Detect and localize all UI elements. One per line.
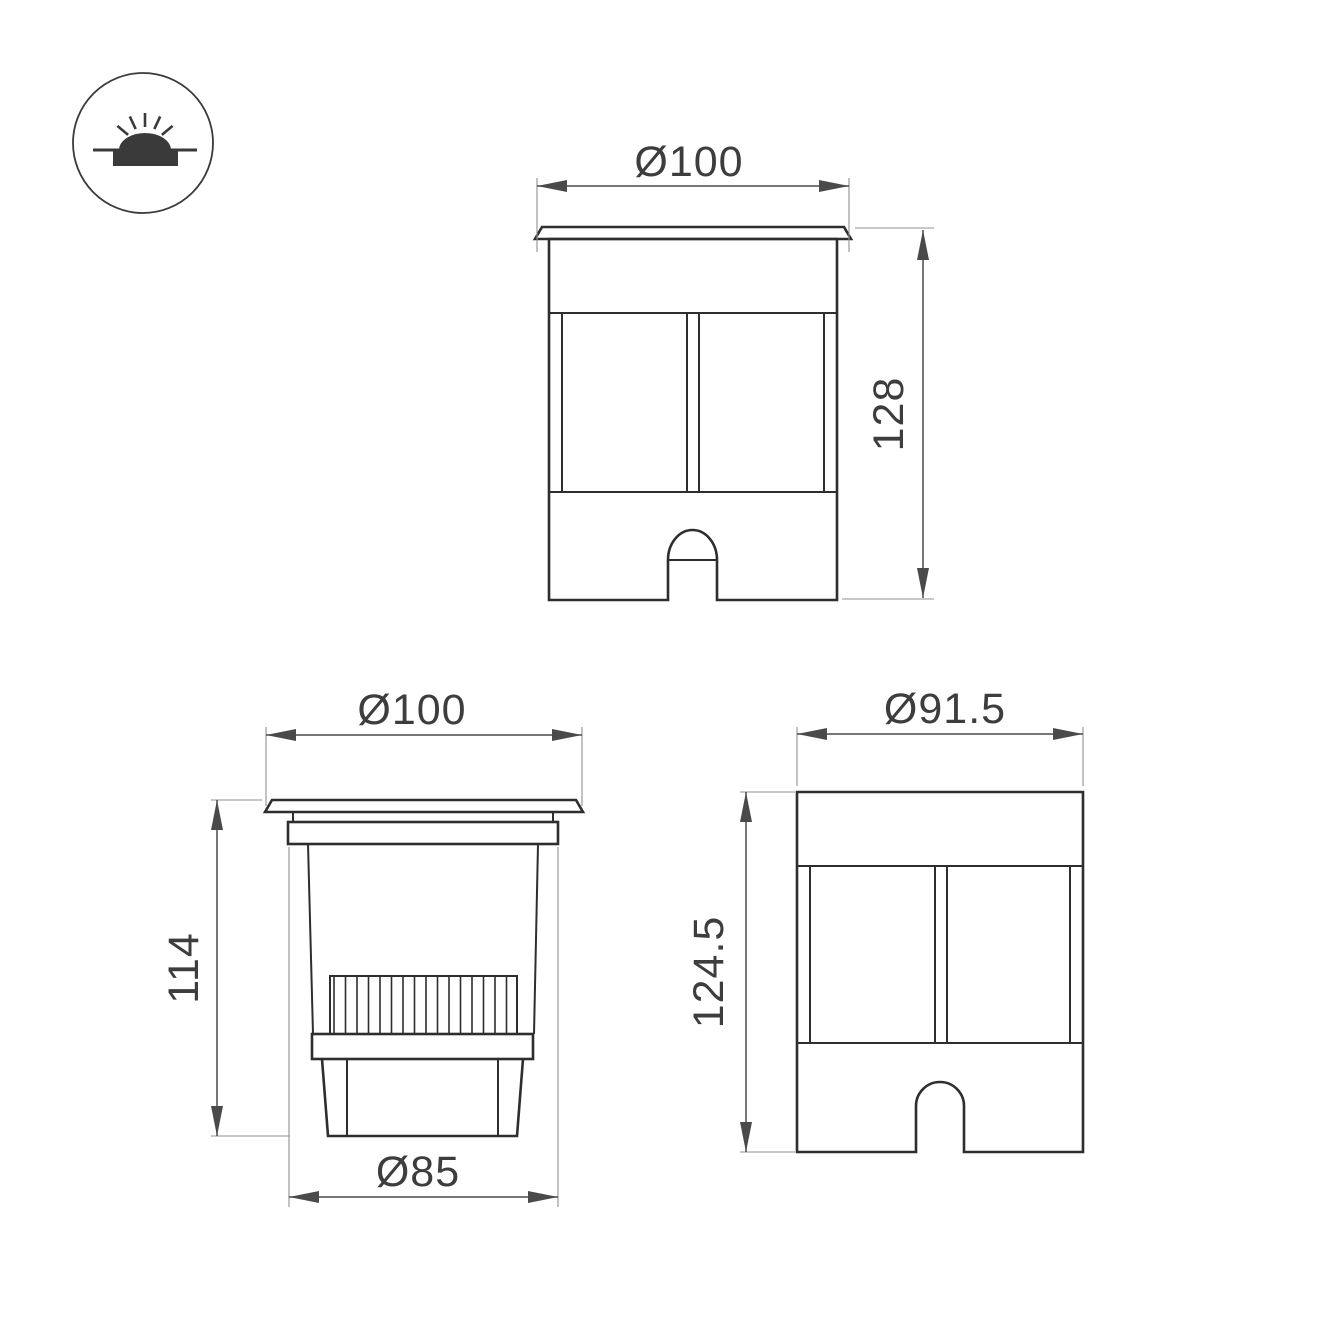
section-view-height-dimension: 114 bbox=[160, 800, 290, 1136]
front-view-width-dimension: Ø100 bbox=[537, 138, 849, 252]
section-heatsink-fins bbox=[334, 976, 507, 1034]
section-flange bbox=[265, 800, 583, 812]
recessed-ground-light-icon bbox=[73, 73, 213, 213]
front-view-body bbox=[549, 239, 837, 600]
side-view-height-dimension: 124.5 bbox=[685, 792, 795, 1152]
icon-lamp-dome bbox=[119, 133, 171, 150]
arrowhead-bottom bbox=[740, 1122, 752, 1152]
front-view-height-label: 128 bbox=[865, 377, 913, 452]
arrowhead-right bbox=[528, 1191, 558, 1203]
side-view-height-label: 124.5 bbox=[685, 916, 733, 1029]
arrowhead-top bbox=[917, 230, 929, 260]
section-view-height-label: 114 bbox=[160, 932, 208, 1004]
arrowhead-right bbox=[1053, 728, 1083, 740]
arrowhead-top bbox=[211, 800, 223, 830]
side-view-glass-divider bbox=[935, 866, 947, 1043]
arrowhead-top bbox=[740, 792, 752, 822]
side-view bbox=[797, 792, 1083, 1152]
icon-recessed-body bbox=[113, 151, 178, 166]
side-view-width-dimension: Ø91.5 bbox=[797, 685, 1083, 786]
extension-lines bbox=[537, 178, 849, 252]
section-collar bbox=[288, 822, 558, 844]
side-view-glass-frame bbox=[810, 866, 1070, 1043]
section-lower-housing-walls bbox=[347, 1059, 498, 1136]
arrowhead-left bbox=[289, 1191, 319, 1203]
front-view-flange bbox=[535, 227, 851, 239]
side-view-width-label: Ø91.5 bbox=[884, 685, 1006, 733]
arrowhead-left bbox=[797, 728, 827, 740]
section-view-top-width-label: Ø100 bbox=[357, 686, 466, 734]
technical-drawing-page: Ø100 128 Ø100 bbox=[0, 0, 1331, 1331]
extension-lines bbox=[740, 792, 795, 1152]
drawing-canvas: Ø100 128 Ø100 bbox=[0, 0, 1331, 1331]
front-view-glass-frame bbox=[562, 313, 824, 492]
front-view-glass-divider bbox=[687, 313, 699, 492]
section-lower-housing bbox=[322, 1059, 523, 1136]
arrowhead-right bbox=[552, 729, 582, 741]
section-step-ring bbox=[293, 812, 553, 822]
front-view-height-dimension: 128 bbox=[842, 228, 934, 599]
section-heatsink bbox=[330, 976, 517, 1034]
arrowhead-bottom bbox=[211, 1106, 223, 1136]
extension-lines bbox=[266, 727, 582, 806]
section-body-walls bbox=[308, 844, 538, 1034]
extension-lines bbox=[211, 800, 290, 1136]
front-view bbox=[535, 227, 851, 600]
section-plate bbox=[312, 1034, 533, 1059]
section-view bbox=[265, 800, 583, 1136]
side-view-body bbox=[797, 792, 1083, 1152]
arrowhead-left bbox=[537, 180, 567, 192]
arrowhead-left bbox=[266, 729, 296, 741]
front-view-width-label: Ø100 bbox=[634, 138, 743, 186]
section-view-top-width-dimension: Ø100 bbox=[266, 686, 582, 806]
extension-lines bbox=[797, 727, 1083, 786]
arrowhead-bottom bbox=[917, 568, 929, 598]
section-view-bottom-width-label: Ø85 bbox=[376, 1148, 460, 1196]
arrowhead-right bbox=[819, 180, 849, 192]
icon-light-rays bbox=[117, 113, 172, 135]
